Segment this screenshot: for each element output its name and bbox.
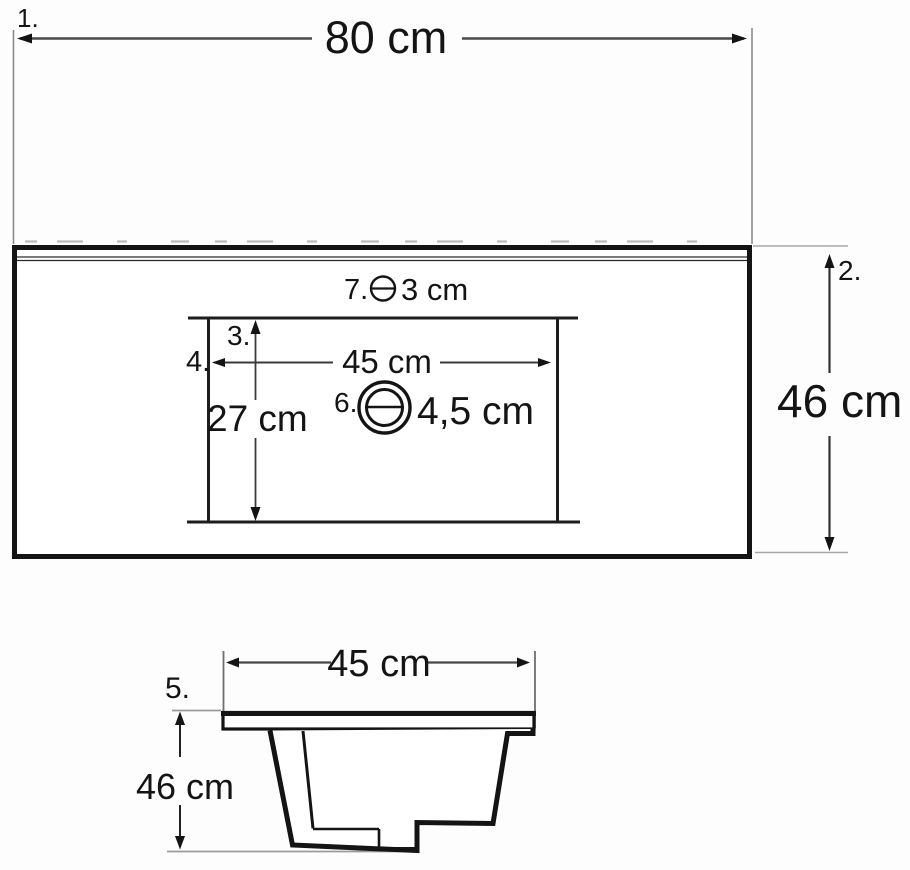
- overall-width-dimension: 1. 80 cm: [14, 3, 753, 244]
- index-label-3: 3.: [227, 320, 250, 351]
- overall-depth-dimension: 2. 46 cm: [753, 246, 902, 553]
- arrowhead-down: [825, 537, 835, 551]
- arrowhead-down: [175, 836, 185, 850]
- index-label-4: 4.: [186, 346, 210, 378]
- arrowhead-up: [825, 254, 835, 268]
- dim-value-46cm-side: 46 cm: [136, 766, 234, 807]
- arrowhead-right: [517, 658, 530, 668]
- side-outline: [221, 713, 536, 851]
- dim-value-3cm: 3 cm: [401, 272, 468, 307]
- dim-value-27cm: 27 cm: [207, 398, 308, 439]
- dim-value-45cm-side: 45 cm: [327, 643, 430, 685]
- dim-value-45cm-top: 45 cm: [342, 343, 432, 380]
- sink-outer-rect: [15, 248, 750, 557]
- top-view: 1. 80 cm 7. 3 cm: [14, 3, 903, 557]
- arrowhead-left: [17, 34, 32, 44]
- drawing-canvas: 1. 80 cm 7. 3 cm: [0, 0, 910, 870]
- dim-value-46cm-right: 46 cm: [777, 375, 902, 427]
- arrowhead-up: [175, 712, 185, 726]
- arrowhead-left: [226, 658, 239, 668]
- arrowhead-right: [732, 34, 747, 44]
- dim-value-80cm: 80 cm: [325, 12, 448, 63]
- sink-technical-drawing: 1. 80 cm 7. 3 cm: [0, 0, 910, 870]
- dim-value-45mm-drain: 4,5 cm: [417, 390, 534, 433]
- index-label-6: 6.: [334, 387, 357, 418]
- index-label-1: 1.: [17, 3, 39, 33]
- index-label-2: 2.: [838, 255, 861, 286]
- overflow-hole-callout: 7. 3 cm: [344, 272, 468, 307]
- side-view: 45 cm 5. 46 cm: [136, 643, 536, 852]
- index-label-7: 7.: [344, 274, 368, 306]
- index-label-5: 5.: [165, 672, 190, 705]
